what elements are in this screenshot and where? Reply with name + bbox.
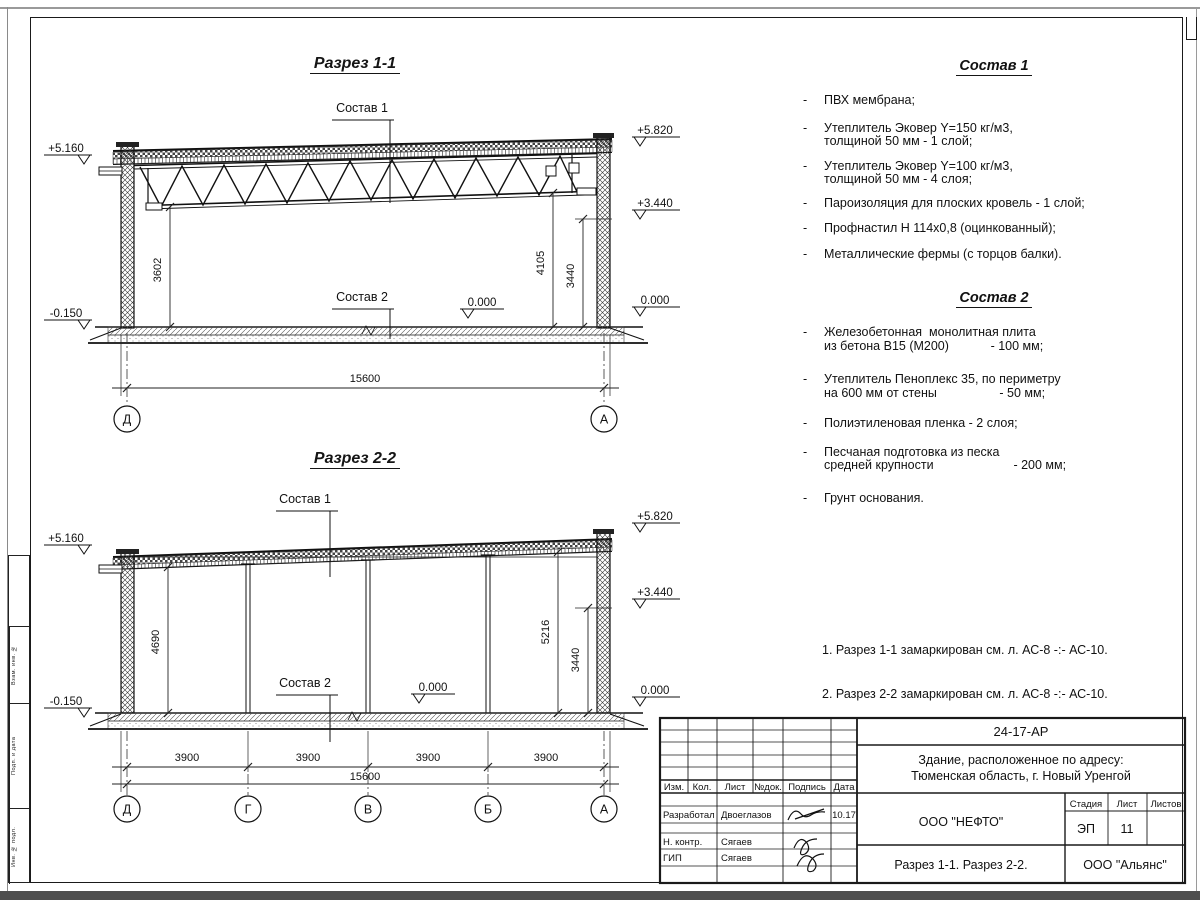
dim-bay-2: 3900: [296, 752, 320, 764]
role: Разработал: [663, 810, 715, 821]
elevation-right-mid: +3.440: [632, 587, 680, 608]
svg-text:Изм.: Изм.: [664, 782, 684, 793]
svg-text:+5.160: +5.160: [48, 533, 84, 545]
svg-text:Кол.: Кол.: [693, 782, 712, 793]
margin-label: Инв. № подл.: [9, 809, 18, 884]
section-1-title: Разрез 1-1: [285, 55, 425, 73]
sostav1-callout-label: Состав 1: [279, 492, 331, 506]
revision-header: Изм. Кол. Лист №док. Подпись Дата: [664, 782, 855, 793]
svg-text:+3.440: +3.440: [637, 198, 673, 210]
signature-scribble: [794, 839, 824, 872]
total-dimension: 15600: [112, 335, 619, 396]
axis-a: А: [600, 803, 609, 817]
margin-cell: Взам. инв. №: [9, 626, 29, 703]
elevation-left-top: +5.160: [44, 143, 92, 164]
roof-assembly: [113, 539, 612, 570]
dim-4105: 4105: [535, 251, 547, 275]
signature-scribble: [788, 809, 825, 820]
signature-rows: Разработал Двоеглазов 10.17 Н. контр. Ся…: [663, 809, 856, 872]
dim-bay-4: 3900: [534, 752, 558, 764]
dim-3602: 3602: [152, 258, 164, 282]
svg-text:+5.160: +5.160: [48, 143, 84, 155]
floor-slab: [88, 713, 648, 729]
subject: Разрез 1-1. Разрез 2-2.: [894, 858, 1027, 872]
margin-stamp-column: Взам. инв. № Подп. и дата Инв. № подл.: [8, 555, 30, 883]
svg-text:-0.150: -0.150: [50, 308, 83, 320]
stage-value: ЭП: [1077, 822, 1095, 836]
list-item: -Профнастил Н 114х0,8 (оцинкованный);: [800, 222, 1188, 236]
dim-15600: 15600: [350, 373, 381, 385]
svg-text:0.000: 0.000: [641, 685, 670, 697]
margin-cell-empty: [9, 556, 29, 626]
elevation-left-top: +5.160: [44, 533, 92, 554]
list-item: -Железобетонная монолитная плита из бето…: [800, 326, 1188, 353]
sheet-label: Лист: [1117, 799, 1138, 810]
sheet-edge-bottom: [0, 891, 1200, 900]
note-line: 1. Разрез 1-1 замаркирован см. л. АС-8 -…: [822, 643, 1108, 658]
dim-3440: 3440: [570, 648, 582, 672]
list-item: -Песчаная подготовка из песка средней кр…: [800, 446, 1188, 473]
margin-label: Взам. инв. №: [9, 627, 18, 703]
axis-g: Г: [245, 803, 252, 817]
sostav2-callout-label: Состав 2: [336, 290, 388, 304]
list-item: -Пароизоляция для плоских кровель - 1 сл…: [800, 197, 1188, 211]
svg-text:Дата: Дата: [833, 782, 855, 793]
sostav2-list: Состав 2 -Железобетонная монолитная плит…: [800, 285, 1188, 505]
list-item: -Полиэтиленовая пленка - 2 слоя;: [800, 417, 1188, 431]
project-line-1: Здание, расположенное по адресу:: [918, 753, 1123, 767]
elevation-right-zero: 0.000: [632, 685, 680, 706]
sheet-edge-right: [1196, 7, 1197, 891]
left-wall: [99, 549, 139, 713]
name: Двоеглазов: [721, 810, 772, 821]
sheet-edge-top: [0, 7, 1200, 9]
svg-text:Лист: Лист: [725, 782, 746, 793]
axis-v: В: [364, 803, 372, 817]
date: 10.17: [832, 810, 856, 821]
project-line-2: Тюменская область, г. Новый Уренгой: [911, 769, 1131, 783]
elevation-floor-zero: 0.000: [411, 682, 455, 703]
margin-cell: Инв. № подл.: [9, 808, 29, 884]
svg-text:0.000: 0.000: [419, 682, 448, 694]
section-2-2-drawing: Состав 1 Состав 2 +5.160 -0.150 +5.820: [30, 485, 710, 830]
svg-text:№док.: №док.: [754, 782, 782, 793]
dim-3440: 3440: [565, 264, 577, 288]
left-wall: [99, 142, 139, 328]
list-item: -Утеплитель Эковер Y=150 кг/м3, толщиной…: [800, 122, 1188, 149]
doc-code: 24-17-АР: [994, 724, 1049, 739]
list-item: -Утеплитель Эковер Y=100 кг/м3, толщиной…: [800, 160, 1188, 187]
margin-label: Подп. и дата: [9, 704, 18, 808]
elevation-right-top: +5.820: [632, 511, 680, 532]
name: Сягаев: [721, 853, 752, 864]
sostav1-callout: Состав 1: [276, 492, 338, 577]
dim-bay-3: 3900: [416, 752, 440, 764]
elevation-right-zero: 0.000: [632, 295, 680, 316]
elevation-left-bottom: -0.150: [44, 696, 92, 717]
right-wall: [593, 133, 614, 328]
company: ООО "НЕФТО": [919, 815, 1003, 829]
dim-4690: 4690: [150, 630, 162, 654]
axis-d: Д: [123, 413, 132, 427]
section-1-1-drawing: Состав 1 Состав 2 +5.160 -0.150 +5.820: [30, 95, 710, 435]
svg-text:Подпись: Подпись: [788, 782, 826, 793]
elevation-right-top: +5.820: [632, 125, 680, 146]
sostav2-callout: Состав 2: [276, 676, 361, 742]
sheets-label: Листов: [1151, 799, 1182, 810]
svg-text:+5.820: +5.820: [637, 125, 673, 137]
sostav1-heading: Состав 1: [800, 58, 1188, 74]
section-2-title: Разрез 2-2: [285, 450, 425, 468]
dim-15600: 15600: [350, 771, 381, 783]
margin-cell: Подп. и дата: [9, 703, 29, 808]
axis-a: А: [600, 413, 609, 427]
contractor: ООО "Альянс": [1083, 858, 1167, 872]
title-block: Изм. Кол. Лист №док. Подпись Дата Разраб…: [655, 713, 1190, 888]
frame-corner-box: [1186, 17, 1197, 40]
axis-b: Б: [484, 803, 492, 817]
axis-d: Д: [123, 803, 132, 817]
elevation-floor-zero: 0.000: [460, 297, 504, 318]
svg-text:+5.820: +5.820: [637, 511, 673, 523]
list-item: -ПВХ мембрана;: [800, 94, 1188, 108]
svg-text:+3.440: +3.440: [637, 587, 673, 599]
drawing-sheet: Взам. инв. № Подп. и дата Инв. № подл. Р…: [0, 0, 1200, 900]
sostav1-callout-label: Состав 1: [336, 101, 388, 115]
svg-text:0.000: 0.000: [641, 295, 670, 307]
dim-bay-1: 3900: [175, 752, 199, 764]
note-line: 2. Разрез 2-2 замаркирован см. л. АС-8 -…: [822, 687, 1108, 702]
svg-text:-0.150: -0.150: [50, 696, 83, 708]
svg-text:0.000: 0.000: [468, 297, 497, 309]
sostav1-list: Состав 1 -ПВХ мембрана; -Утеплитель Эков…: [800, 55, 1188, 261]
vertical-dimensions: 3602 4105 3440: [152, 189, 612, 331]
vertical-dimensions: 4690 5216 3440: [150, 548, 612, 717]
dim-5216: 5216: [540, 620, 552, 644]
elevation-right-mid: +3.440: [632, 198, 680, 219]
sheet-number: 11: [1121, 822, 1134, 836]
stage-label: Стадия: [1070, 799, 1102, 810]
elevation-left-bottom: -0.150: [44, 308, 92, 329]
roof-assembly: [113, 139, 612, 165]
list-item: -Грунт основания.: [800, 492, 1188, 506]
project-info: 24-17-АР Здание, расположенное по адресу…: [894, 724, 1181, 872]
name: Сягаев: [721, 837, 752, 848]
sostav2-callout-label: Состав 2: [279, 676, 331, 690]
role: Н. контр.: [663, 837, 702, 848]
sostav2-heading: Состав 2: [800, 290, 1188, 306]
bay-dimensions: 3900 3900 3900 3900 15600: [112, 731, 619, 792]
list-item: -Металлические фермы (с торцов балки).: [800, 248, 1188, 262]
role: ГИП: [663, 853, 682, 864]
list-item: -Утеплитель Пеноплекс 35, по периметру н…: [800, 373, 1188, 400]
